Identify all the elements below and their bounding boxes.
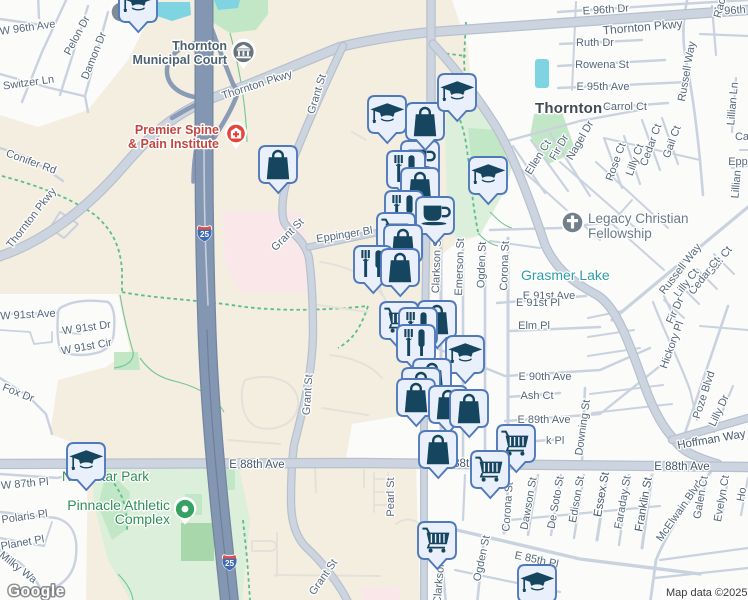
- svg-text:& Pain Institute: & Pain Institute: [128, 137, 219, 151]
- svg-text:Carrol Ct: Carrol Ct: [603, 101, 647, 113]
- svg-text:Pearl St: Pearl St: [385, 477, 397, 516]
- svg-text:Thornton: Thornton: [535, 100, 602, 117]
- svg-text:Municipal Court: Municipal Court: [133, 53, 228, 67]
- svg-text:Thornton: Thornton: [172, 39, 227, 53]
- svg-text:Complex: Complex: [115, 511, 170, 527]
- svg-text:Epp: Epp: [728, 156, 748, 168]
- svg-text:Ho: Ho: [735, 487, 748, 503]
- svg-text:Grasmer Lake: Grasmer Lake: [521, 267, 610, 283]
- svg-text:E 88th Ave: E 88th Ave: [229, 459, 284, 471]
- svg-text:Legacy Christian: Legacy Christian: [588, 211, 689, 226]
- svg-text:Fellowship: Fellowship: [588, 226, 652, 241]
- svg-text:Elm Pl: Elm Pl: [518, 320, 550, 332]
- svg-text:Clarkson St: Clarkson St: [430, 236, 444, 293]
- svg-text:k Pl: k Pl: [546, 435, 564, 447]
- svg-text:Corona St: Corona St: [498, 241, 512, 291]
- svg-text:E 90th Ave: E 90th Ave: [518, 371, 571, 383]
- svg-text:Map data ©2025: Map data ©2025: [666, 587, 748, 599]
- svg-text:Ruth Dr: Ruth Dr: [576, 37, 614, 49]
- svg-text:E 88th Ave: E 88th Ave: [654, 461, 709, 473]
- svg-text:Ca: Ca: [735, 131, 748, 143]
- svg-text:Ash Ct: Ash Ct: [520, 390, 553, 402]
- svg-text:Ogden St: Ogden St: [475, 241, 489, 288]
- svg-text:E 91st Pl: E 91st Pl: [516, 297, 560, 309]
- svg-text:E 95th Ave: E 95th Ave: [576, 81, 629, 93]
- svg-text:Rowena St: Rowena St: [575, 59, 629, 71]
- svg-text:Premier Spine: Premier Spine: [135, 123, 219, 137]
- svg-text:Google: Google: [8, 583, 65, 600]
- svg-text:Emerson St: Emerson St: [453, 238, 467, 296]
